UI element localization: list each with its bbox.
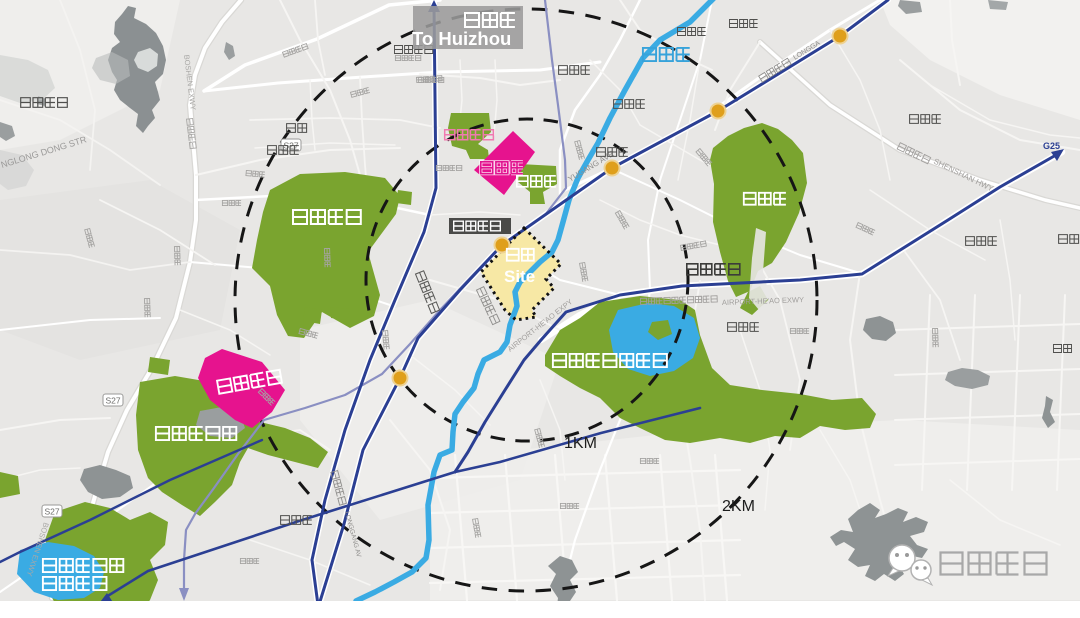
svg-text:1KM: 1KM (564, 435, 597, 452)
svg-text:G25: G25 (1043, 141, 1060, 151)
svg-text:2KM: 2KM (722, 498, 755, 515)
svg-text:Site: Site (504, 267, 535, 286)
svg-text:S27: S27 (105, 396, 120, 406)
svg-text:S27: S27 (44, 507, 59, 517)
svg-text:To Huizhou: To Huizhou (412, 28, 511, 49)
